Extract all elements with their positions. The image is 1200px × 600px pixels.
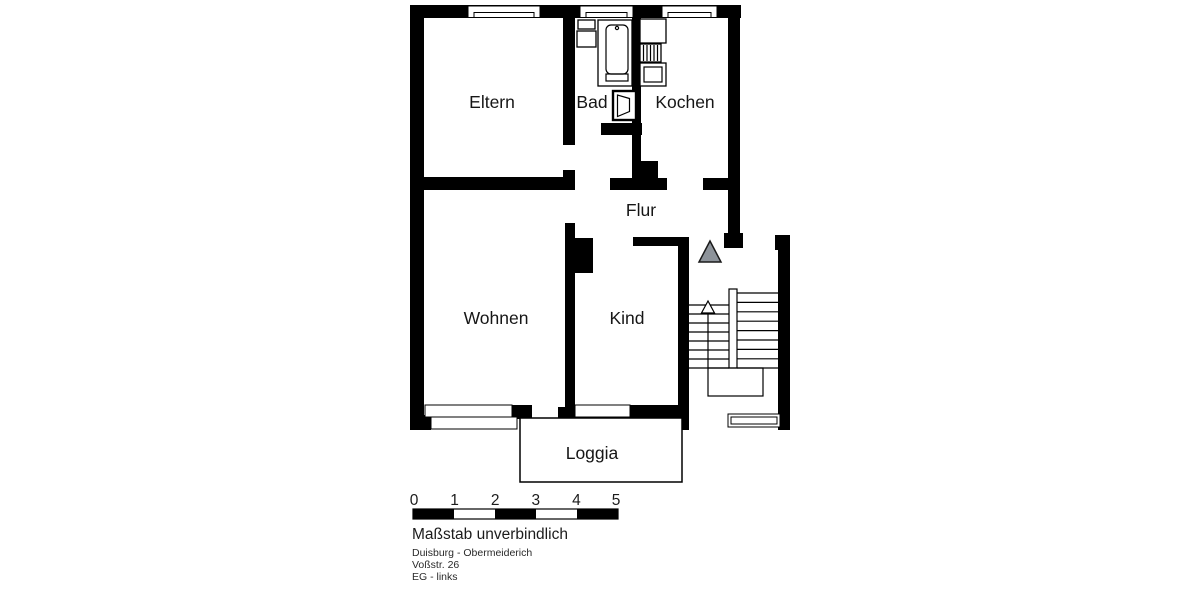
floorplan-page: Eltern Bad Kochen Flur Wohnen Kind Loggi…	[0, 0, 1200, 600]
stair-divider	[729, 289, 737, 368]
label-loggia: Loggia	[566, 443, 619, 463]
scale-tick-3: 3	[531, 492, 540, 509]
wall-left	[410, 5, 424, 430]
stair-landing	[708, 368, 763, 396]
scale-bar: 0 1 2 3 4 5	[410, 492, 621, 519]
wall-flur-north-a	[610, 178, 667, 190]
label-wohnen: Wohnen	[464, 308, 529, 328]
label-kind: Kind	[609, 308, 644, 328]
window-bad	[580, 6, 633, 18]
label-kochen: Kochen	[655, 92, 714, 112]
scale-tick-5: 5	[612, 492, 621, 509]
bath-door-icon	[613, 91, 636, 120]
entrance-triangle-icon	[699, 241, 721, 262]
wall-flur-north-b	[703, 178, 728, 190]
scale-tick-0: 0	[410, 492, 419, 509]
kitchen-sink	[640, 63, 666, 86]
kitchen-counter	[640, 19, 666, 43]
wall-stair-right-cap	[775, 235, 790, 250]
window-kochen	[662, 6, 717, 18]
label-eltern: Eltern	[469, 92, 515, 112]
wall-stair-left	[678, 237, 689, 430]
door-jamb-eltern	[563, 170, 575, 178]
scale-caption: Maßstab unverbindlich	[412, 526, 568, 543]
label-bad: Bad	[576, 92, 607, 112]
wall-kochen-east	[728, 5, 740, 233]
wall-kind-north	[633, 237, 683, 246]
washbasin	[577, 31, 596, 47]
wall-eltern-bad	[563, 18, 575, 145]
scale-tick-1: 1	[450, 492, 459, 509]
staircase	[689, 289, 778, 396]
toilet-cistern	[578, 20, 595, 29]
wall-stair-right	[778, 248, 790, 430]
address-city: Duisburg - Obermeiderich	[412, 547, 532, 559]
captions: Maßstab unverbindlich Duisburg - Obermei…	[412, 526, 568, 583]
label-flur: Flur	[626, 200, 656, 220]
floor-plan: Eltern Bad Kochen Flur Wohnen Kind Loggi…	[0, 0, 1200, 600]
window-stairwell-south	[728, 414, 780, 427]
stair-up-arrow-icon	[702, 301, 715, 368]
window-eltern	[468, 6, 540, 18]
scale-bar-segment	[577, 509, 618, 519]
address-floor: EG - links	[412, 571, 458, 583]
wall-eltern-wohnen	[412, 177, 575, 190]
window-wohnen-south	[425, 405, 517, 429]
scale-tick-4: 4	[572, 492, 581, 509]
scale-tick-2: 2	[491, 492, 500, 509]
address-street: Voßstr. 26	[412, 559, 459, 571]
wall-bad-kochen-foot	[632, 161, 658, 180]
kitchen-fixtures	[640, 19, 666, 86]
bathtub-outer	[598, 20, 632, 86]
wall-kochen-east-foot	[724, 233, 743, 248]
scale-bar-segment	[413, 509, 454, 519]
wall-wohnen-kind-block	[567, 238, 593, 273]
kitchen-drainer	[640, 44, 661, 62]
scale-bar-segment	[495, 509, 536, 519]
